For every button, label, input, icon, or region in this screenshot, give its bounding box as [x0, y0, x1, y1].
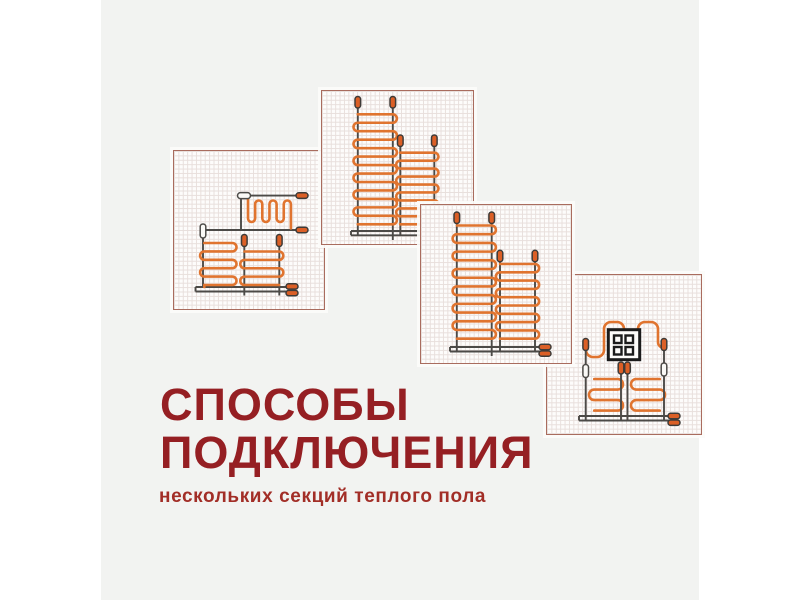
end-cap-icon [661, 339, 667, 351]
heating-cable-serpentines [453, 226, 539, 339]
infographic-poster: СПОСОБЫ ПОДКЛЮЧЕНИЯ нескольких секций те… [0, 0, 800, 600]
letterbox-right [699, 0, 800, 600]
poster-title: СПОСОБЫ ПОДКЛЮЧЕНИЯ [160, 381, 533, 477]
coupler-icon [583, 365, 589, 378]
end-cap-icon [668, 420, 680, 425]
end-cap-icon [390, 97, 396, 109]
end-cap-icon [286, 284, 298, 289]
poster-content: СПОСОБЫ ПОДКЛЮЧЕНИЯ нескольких секций те… [101, 0, 699, 600]
diagram-panel-scheme-1 [173, 150, 325, 310]
diagram-panel-scheme-3 [420, 204, 572, 364]
end-cap-icon [489, 212, 495, 224]
end-cap-icon [668, 413, 680, 418]
coupler-icon [200, 224, 206, 238]
end-cap-icon [286, 290, 298, 295]
end-cap-icon [532, 250, 538, 261]
end-cap-icon [242, 235, 248, 247]
title-line-2: ПОДКЛЮЧЕНИЯ [160, 429, 533, 477]
coupler-icon [661, 363, 667, 376]
end-cap-icon [497, 250, 503, 261]
end-cap-icon [296, 227, 308, 233]
end-cap-icon [277, 235, 283, 247]
couplers [200, 193, 250, 238]
end-cap-icon [539, 351, 551, 356]
end-caps [242, 193, 309, 296]
junction-box [608, 330, 639, 360]
title-line-1: СПОСОБЫ [160, 381, 533, 429]
scheme-3-drawing [421, 205, 571, 363]
coupler-icon [238, 193, 251, 199]
letterbox-left [0, 0, 101, 600]
end-cap-icon [296, 193, 308, 199]
end-cap-icon [398, 135, 404, 147]
end-cap-icon [618, 362, 624, 374]
end-cap-icon [432, 135, 438, 147]
end-cap-icon [625, 362, 631, 374]
end-cap-icon [583, 339, 589, 351]
end-cap-icon [454, 212, 460, 224]
scheme-1-drawing [174, 151, 324, 309]
end-cap-icon [539, 344, 551, 349]
poster-subtitle: нескольких секций теплого пола [159, 486, 486, 508]
end-cap-icon [355, 97, 361, 109]
